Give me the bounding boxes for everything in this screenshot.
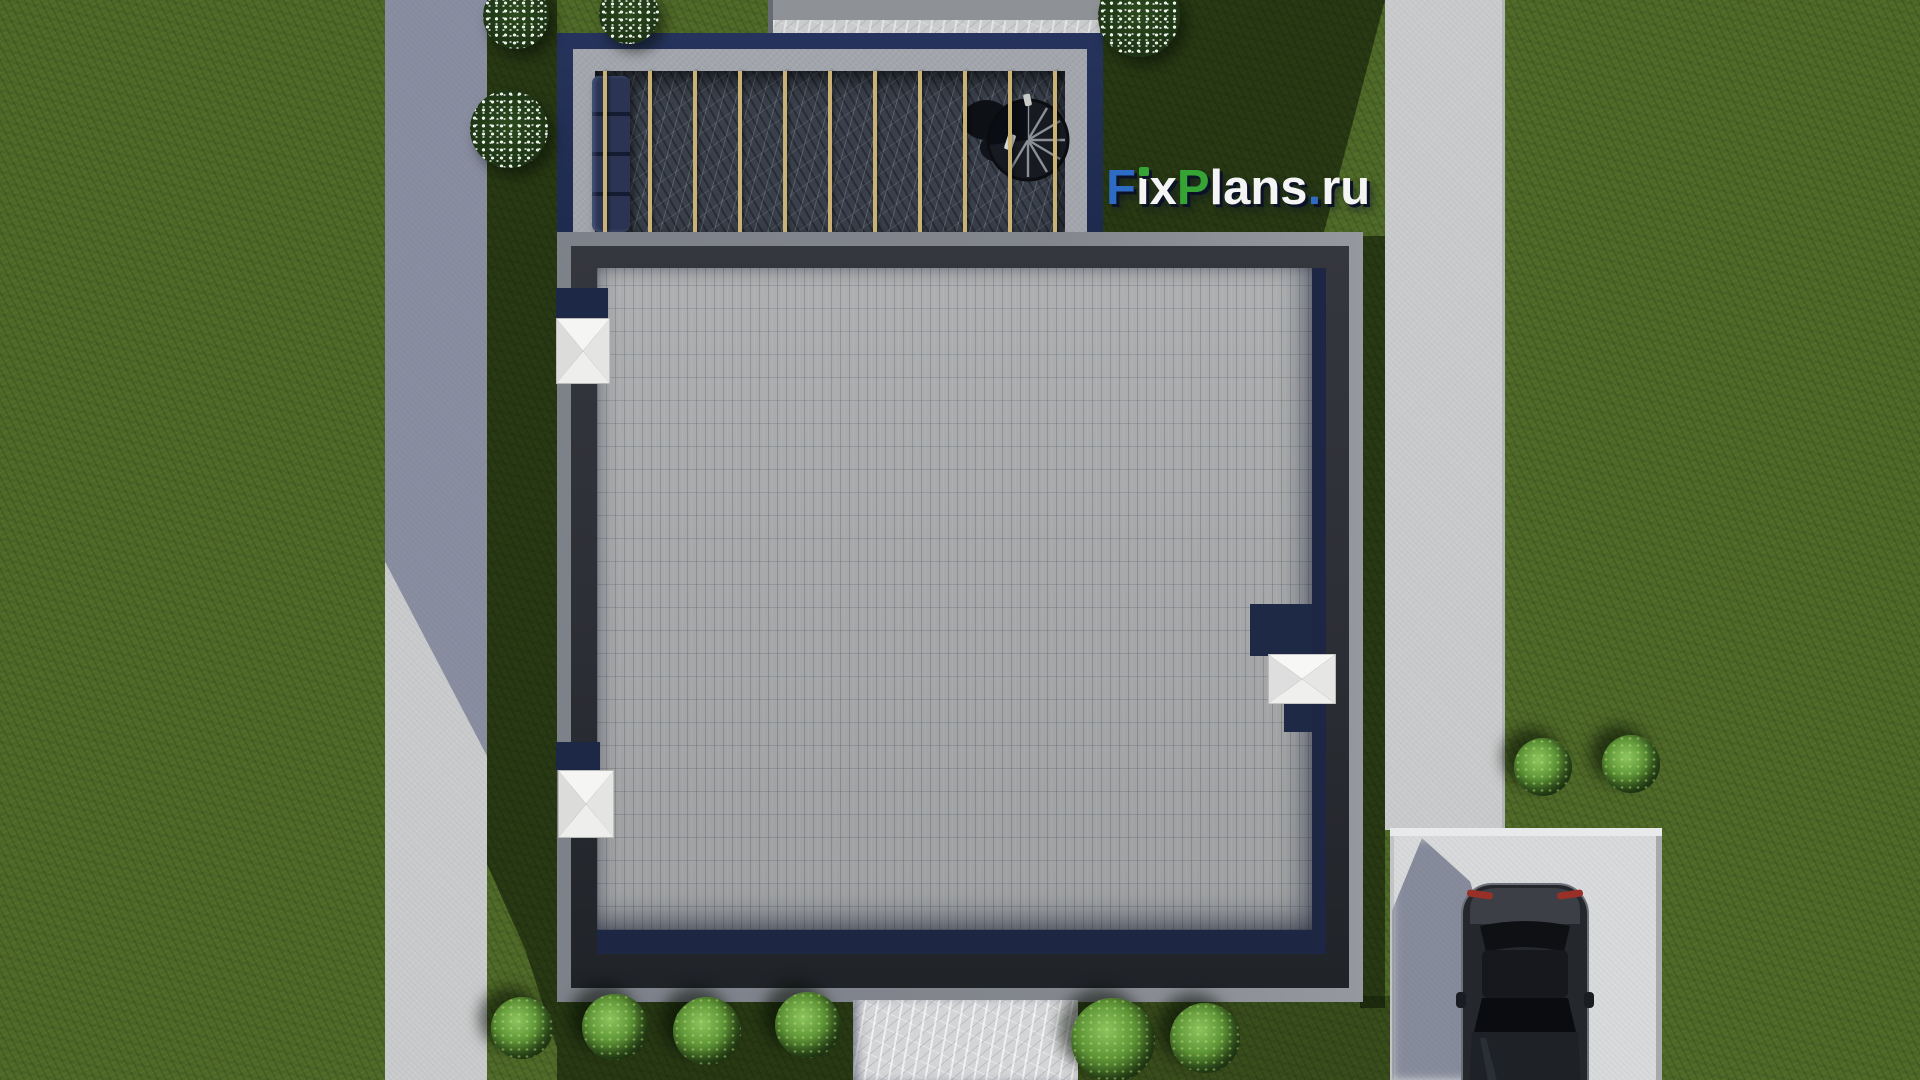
pergola-beam — [873, 71, 877, 232]
green-bush — [1602, 735, 1660, 793]
aerial-site-render: FixPlans.ru — [0, 0, 1920, 1080]
pergola-beam — [648, 71, 652, 232]
roof-shadow-patch-cap1 — [556, 288, 608, 318]
logo-segment: x — [1150, 161, 1177, 215]
green-bush — [582, 994, 648, 1060]
upper-wall-block — [768, 0, 1100, 36]
pergola-beam — [1053, 71, 1057, 232]
pergola-beam — [963, 71, 967, 232]
green-bush — [491, 997, 553, 1059]
pergola-beam — [693, 71, 697, 232]
green-bush — [1170, 1003, 1240, 1073]
logo-segment-i: i — [1136, 161, 1150, 215]
logo-segment: lans — [1210, 161, 1308, 215]
roof-paver-shadow-bottom — [597, 930, 1312, 954]
logo-segment: . — [1308, 161, 1322, 215]
pergola-beam — [603, 71, 607, 232]
green-bush — [775, 992, 841, 1058]
pergola-beam — [1008, 71, 1012, 232]
roof-paver-field — [597, 268, 1312, 930]
white-flower-bush — [470, 90, 548, 168]
logo-segment: P — [1177, 161, 1210, 215]
roof-shadow-patch-cap2 — [556, 742, 600, 770]
watermark-logo: FixPlans.ru — [1106, 164, 1370, 213]
green-bush — [1071, 998, 1155, 1080]
skylight-cap-left-bottom — [558, 770, 614, 838]
skylight-cap-left-top — [556, 318, 610, 384]
pergola-beam — [918, 71, 922, 232]
pergola-beam — [828, 71, 832, 232]
car — [1456, 878, 1594, 1080]
green-bush — [673, 997, 741, 1065]
right-road — [1385, 0, 1505, 830]
pergola-beam — [738, 71, 742, 232]
roof-paver-shadow-right — [1312, 268, 1326, 954]
pergola-beam — [783, 71, 787, 232]
logo-segment: ru — [1321, 161, 1370, 215]
pergola-beams — [601, 71, 1059, 232]
bottom-marble-walkway — [853, 1000, 1078, 1080]
logo-segment: F — [1106, 161, 1136, 215]
green-bush — [1514, 738, 1572, 796]
skylight-cap-right — [1268, 654, 1336, 704]
grass-shadow-strip-right — [1360, 236, 1385, 1008]
roof-shadow-patch-a — [1250, 604, 1312, 656]
